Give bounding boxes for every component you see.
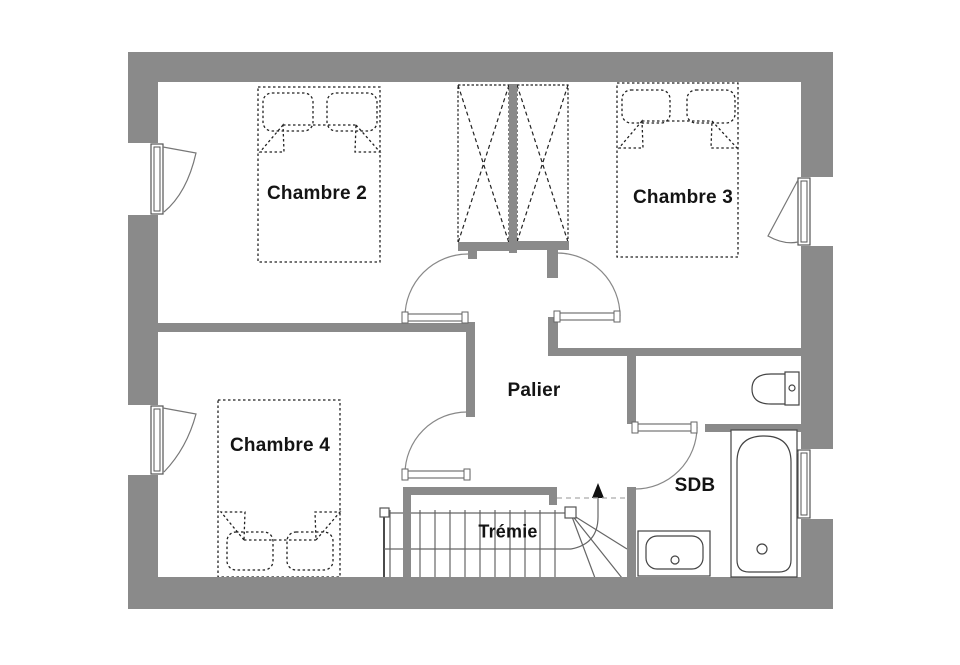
wall-stairwell-step [549,487,557,505]
wall-chambre2-chambre4 [157,323,466,332]
bed-outline [617,83,738,257]
wall-left-upper [128,52,158,143]
wall-stair-sdb [627,487,636,578]
wall-bottom [128,577,833,609]
window-chambre2 [151,144,196,214]
sheet-fold [260,125,284,152]
wall-closet-base-left [458,242,509,251]
wall-top [128,52,833,82]
door-swing-arc [405,412,467,474]
wall-right-lower [801,519,833,609]
stair-newel-post [565,507,576,518]
stair-winders [571,514,627,578]
bathtub-outline [731,430,797,577]
bed-chambre-3 [617,83,738,257]
wall-chambre3-sdb [548,348,801,356]
door-swing-arc [405,254,468,317]
door-leaf-cap [691,422,697,433]
door-leaf-cap [402,469,408,480]
wall-stairwell-top [403,487,549,495]
wardrobe-cross [517,85,568,242]
window-frame [151,406,163,474]
room-label-tremie: Trémie [478,522,537,543]
window-frame [798,178,810,245]
room-label-chambre2: Chambre 2 [267,183,367,205]
room-label-palier: Palier [508,380,561,402]
window-casement [163,147,196,212]
sheet-fold [355,125,380,152]
door-leaf [557,313,620,320]
wall-left-middle [128,215,158,405]
bathtub-icon [731,430,797,577]
bed-chambre-2 [258,87,380,262]
bed-outline [218,400,340,577]
toilet-bowl [752,374,786,404]
window-frame [798,450,810,518]
pillow [687,90,735,123]
door-leaf [405,314,468,321]
floor-plan: Chambre 2 Chambre 3 Chambre 4 Palier Tré… [0,0,960,665]
stair-rail-post-left [380,508,389,517]
window-chambre4 [151,406,196,474]
sheet-fold [711,121,737,148]
bed-chambre-4 [218,400,340,577]
door-chambre4 [402,412,470,480]
wall-closet-base-right [517,241,569,250]
toilet-button [789,385,795,391]
door-leaf-cap [632,422,638,433]
wall-palier-sdb [627,354,636,424]
door-swing-arc [557,253,620,316]
stair-treads [390,510,555,577]
window-frame [151,144,163,214]
pillow [622,90,670,123]
wall-door-stub-right [547,250,558,278]
toilet-icon [752,372,799,405]
wardrobe-left [458,85,509,243]
wall-left-lower [128,475,158,609]
door-leaf-cap [614,311,620,322]
stair-direction-arrow [592,483,604,498]
wall-right-upper [801,52,833,177]
window-casement [163,408,196,472]
window-casement [768,180,798,243]
door-leaf [405,471,470,478]
door-chambre2 [402,254,468,323]
pillow [287,532,333,570]
door-leaf-cap [554,311,560,322]
door-leaf-cap [462,312,468,323]
room-label-sdb: SDB [675,475,716,497]
room-label-chambre3: Chambre 3 [633,187,733,209]
wall-stairwell-left [403,487,411,578]
wall-right-middle [801,246,833,449]
wall-door-stub-left [468,250,477,259]
pillow [227,532,273,570]
sheet-fold [221,512,245,540]
door-leaf-cap [464,469,470,480]
sheet-fold [619,121,643,148]
wardrobe-right [517,85,568,242]
door-leaf-cap [402,312,408,323]
window-chambre3 [768,178,810,245]
bed-outline [258,87,380,262]
door-chambre3 [554,253,620,322]
wardrobe-cross [458,85,509,243]
wall-chambre4-palier [466,322,475,417]
door-leaf [635,424,697,431]
room-label-chambre4: Chambre 4 [230,435,330,457]
sheet-fold [315,512,340,540]
floor-plan-drawing [0,0,960,665]
wall-closet-divider [509,84,517,253]
sink-icon [638,531,710,576]
